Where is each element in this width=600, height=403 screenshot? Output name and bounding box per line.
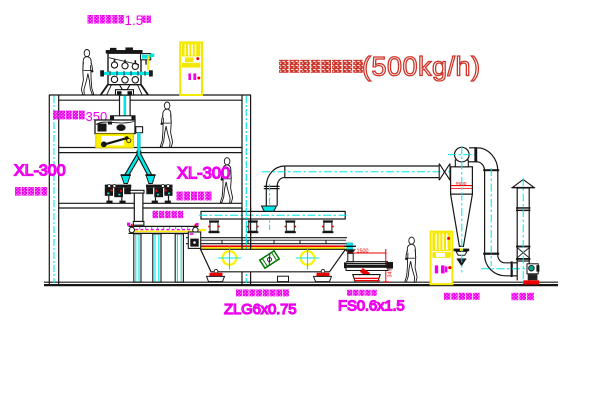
svg-text:XL-300: XL-300 — [14, 163, 66, 180]
svg-text:ZLG6x0.75: ZLG6x0.75 — [224, 301, 296, 318]
svg-text:XL-300: XL-300 — [177, 165, 230, 183]
svg-text:1.5: 1.5 — [125, 13, 144, 28]
svg-text:1500: 1500 — [357, 249, 369, 255]
svg-text:(500kg/h): (500kg/h) — [362, 52, 481, 82]
svg-text:FS0.6x1.5: FS0.6x1.5 — [338, 298, 405, 315]
